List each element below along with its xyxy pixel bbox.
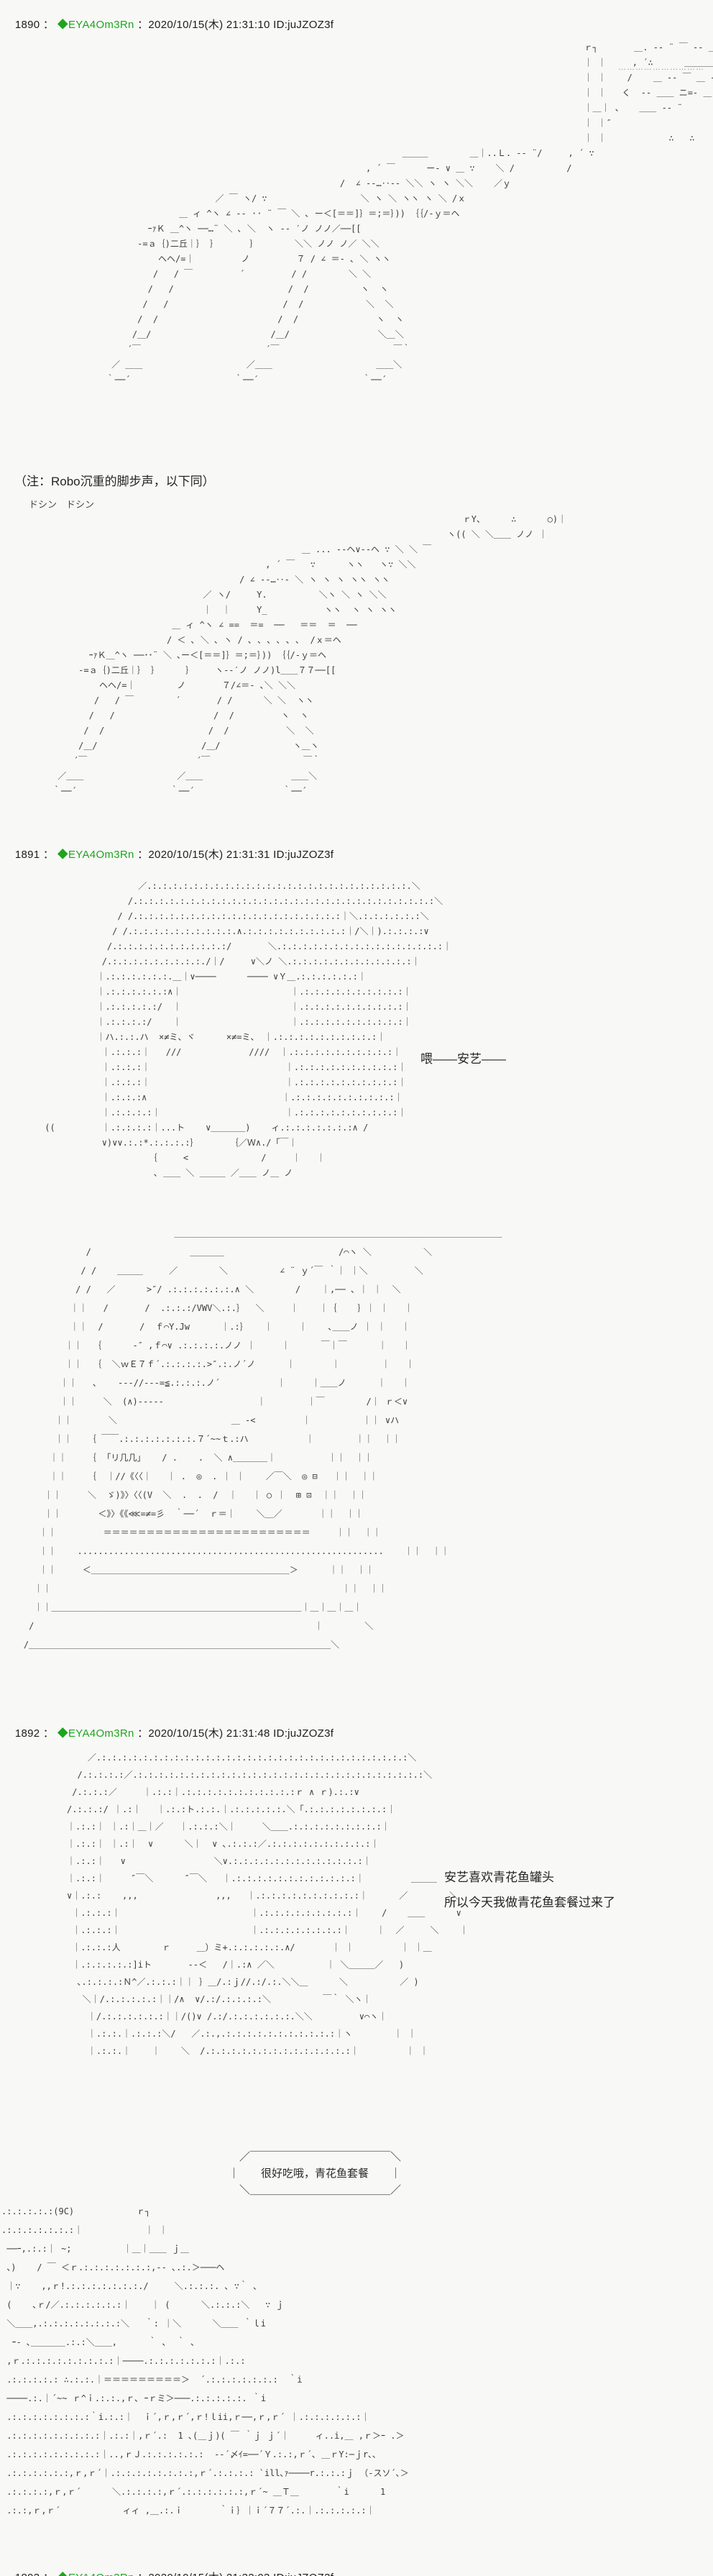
post-separator: ： — [40, 19, 57, 31]
post-separator: ： — [40, 1727, 57, 1740]
dialog-text-1892-line1: 安艺喜欢青花鱼罐头 — [444, 1867, 554, 1885]
post-header-1892: 1892 ： ◆EYA4Om3Rn ：2020/10/15(木) 21:31:4… — [2, 1713, 333, 1753]
post-meta: ：2020/10/15(木) 21:31:31 ID:juJZOZ3f — [134, 849, 334, 861]
post-separator: ： — [40, 2572, 57, 2576]
post-meta: ：2020/10/15(木) 21:32:03 ID:juJZOZ3f — [134, 2572, 334, 2576]
speech-bubble-box: ／￣￣￣￣￣￣￣￣￣￣￣￣￣＼ ｜ 很好吃哦，青花鱼套餐 ｜ ＼＿＿＿＿＿＿＿＿… — [229, 2149, 401, 2198]
girl-face-aa-1892: ／.:.:.:.:.:.:.:.:.:.:.:.:.:.:.:.:.:.:.:.… — [20, 1749, 468, 2060]
post-header-1893: 1893 ： ◆EYA4Om3Rn ：2020/10/15(木) 21:32:0… — [2, 2557, 333, 2576]
post-number: 1890 — [15, 19, 40, 31]
post-number: 1893 — [15, 2572, 40, 2576]
dialog-text-1891: 喂——安艺—— — [420, 1049, 506, 1067]
post-number: 1892 — [15, 1727, 40, 1740]
tripcode: ◆EYA4Om3Rn — [57, 1727, 134, 1740]
aa-thread-page: 1890 ： ◆EYA4Om3Rn ：2020/10/15(木) 21:31:1… — [0, 0, 713, 2576]
post-separator: ： — [40, 849, 57, 861]
post-meta: ：2020/10/15(木) 21:31:10 ID:juJZOZ3f — [134, 19, 334, 31]
tripcode: ◆EYA4Om3Rn — [57, 2572, 134, 2576]
dialog-text-1892-line2: 所以今天我做青花鱼套餐过来了 — [444, 1892, 615, 1910]
mecha-tank-aa: .:.:.:.:.:(9C) ｒ┐ .:.:.:.:.:.:.:｜ ｜ ｜ ──… — [1, 2202, 409, 2520]
girl-face-aa-1891: ／.:.:.:.:.:.:.:.:.:.:.:.:.:.:.:.:.:.:.:.… — [40, 879, 451, 1181]
robot-aa-2: ｒY、 ∴ ○)｜ ヽ(( ＼ ＼＿＿ ノノ ｜ ＿ ... -‐ヘ∨--ヘ ∵… — [6, 512, 566, 799]
cockpit-machine-aa: ＿＿＿＿＿＿＿＿＿＿＿＿＿＿＿＿＿＿＿＿＿＿＿＿＿＿＿＿＿＿＿＿＿＿＿＿＿＿ /… — [3, 1224, 502, 1654]
post-header-1890: 1890 ： ◆EYA4Om3Rn ：2020/10/15(木) 21:31:1… — [2, 4, 333, 44]
robot-aa-1: ｒ┐ ＿. -‐ ¨ ￣ ‐- ＿ ｜ ｜ , ´∴ ＿＿＿＿ — [65, 40, 713, 388]
footstep-sfx: ドシン ドシン — [29, 497, 94, 511]
post-meta: ：2020/10/15(木) 21:31:48 ID:juJZOZ3f — [134, 1727, 334, 1740]
note-text: （注：Robo沉重的脚步声，以下同） — [14, 471, 215, 489]
post-header-1891: 1891 ： ◆EYA4Om3Rn ：2020/10/15(木) 21:31:3… — [2, 834, 333, 874]
tripcode: ◆EYA4Om3Rn — [57, 19, 134, 31]
post-number: 1891 — [15, 849, 40, 861]
tripcode: ◆EYA4Om3Rn — [57, 849, 134, 861]
